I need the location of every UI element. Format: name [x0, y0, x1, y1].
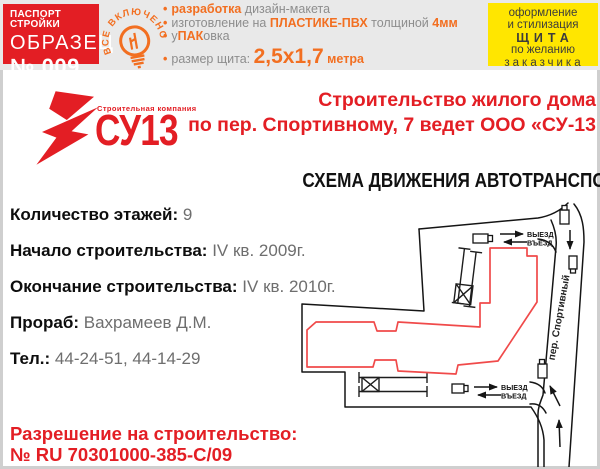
construction-passport-board: ПАСПОРТ СТРОЙКИ ОБРАЗЕЦ № 009 ВСЕ ВКЛЮЧЕ… — [0, 0, 600, 469]
truck-icon — [569, 256, 577, 273]
bullet-dot: • — [163, 52, 167, 66]
truck-icon — [473, 234, 493, 243]
info-row-floors: Количество этажей: 9 — [10, 205, 192, 225]
street-right-line — [569, 204, 584, 467]
building-permit: Разрешение на строительство: № RU 703010… — [10, 423, 297, 465]
permit-line-2: № RU 70301000-385-С/09 — [10, 444, 297, 465]
lightbulb-icon — [118, 25, 153, 70]
su13-lightning-icon — [22, 84, 102, 172]
offer-shield-word: ЩИТА — [488, 32, 598, 44]
top-road — [419, 203, 568, 229]
bullet-material: •изготовление на ПЛАСТИКЕ-ПВХ толщиной 4… — [163, 17, 458, 31]
sample-label: ОБРАЗЕЦ — [10, 33, 99, 53]
crane-icon — [452, 248, 483, 307]
passport-title: ПАСПОРТ СТРОЙКИ — [10, 10, 99, 30]
junction-up-arrow — [550, 386, 560, 406]
offer-line: оформление — [488, 7, 598, 19]
project-heading: Строительство жилого дома по пер. Спорти… — [150, 88, 596, 137]
service-bullets: •разработка дизайн-макета •изготовление … — [163, 3, 458, 68]
offer-box: оформление и стилизация ЩИТА по желанию … — [488, 3, 598, 66]
bullet-design: •разработка дизайн-макета — [163, 3, 458, 17]
bottom-entry-label: ВЪЕЗД — [501, 392, 527, 401]
bullet-dot: • — [163, 16, 167, 30]
traffic-schema-map: ВЫЕЗД ВЪЕЗД ВЫЕЗД ВЪЕЗД пер. Спортивный — [280, 190, 600, 467]
truck-icon — [452, 384, 468, 393]
crane-icon — [359, 372, 427, 397]
passport-sample-box: ПАСПОРТ СТРОЙКИ ОБРАЗЕЦ № 009 — [3, 4, 99, 64]
info-row-start: Начало строительства: IV кв. 2009г. — [10, 241, 306, 261]
bullet-dot: • — [163, 2, 167, 16]
top-entry-label: ВЪЕЗД — [527, 239, 553, 248]
info-row-phone: Тел.: 44-24-51, 44-14-29 — [10, 349, 200, 369]
heading-line-1: Строительство жилого дома — [150, 88, 596, 113]
offer-line: заказчика — [488, 57, 598, 69]
info-row-foreman: Прораб: Вахрамеев Д.М. — [10, 313, 211, 333]
offer-line: и стилизация — [488, 19, 598, 31]
bullet-dot: • — [163, 29, 167, 43]
header-bar: ПАСПОРТ СТРОЙКИ ОБРАЗЕЦ № 009 ВСЕ ВКЛЮЧЕ… — [0, 0, 600, 70]
offer-line: по желанию — [488, 44, 598, 56]
bullet-packing: •уПАКовка — [163, 30, 458, 44]
bullet-size: •размер щита: 2,5х1,7 метра — [163, 46, 458, 68]
heading-line-2: по пер. Спортивному, 7 ведет ООО «СУ-13 — [150, 113, 596, 138]
sample-number: № 009 — [10, 56, 99, 78]
street-up-arrow — [559, 420, 560, 447]
site-boundary — [302, 229, 544, 467]
permit-line-1: Разрешение на строительство: — [10, 423, 297, 444]
